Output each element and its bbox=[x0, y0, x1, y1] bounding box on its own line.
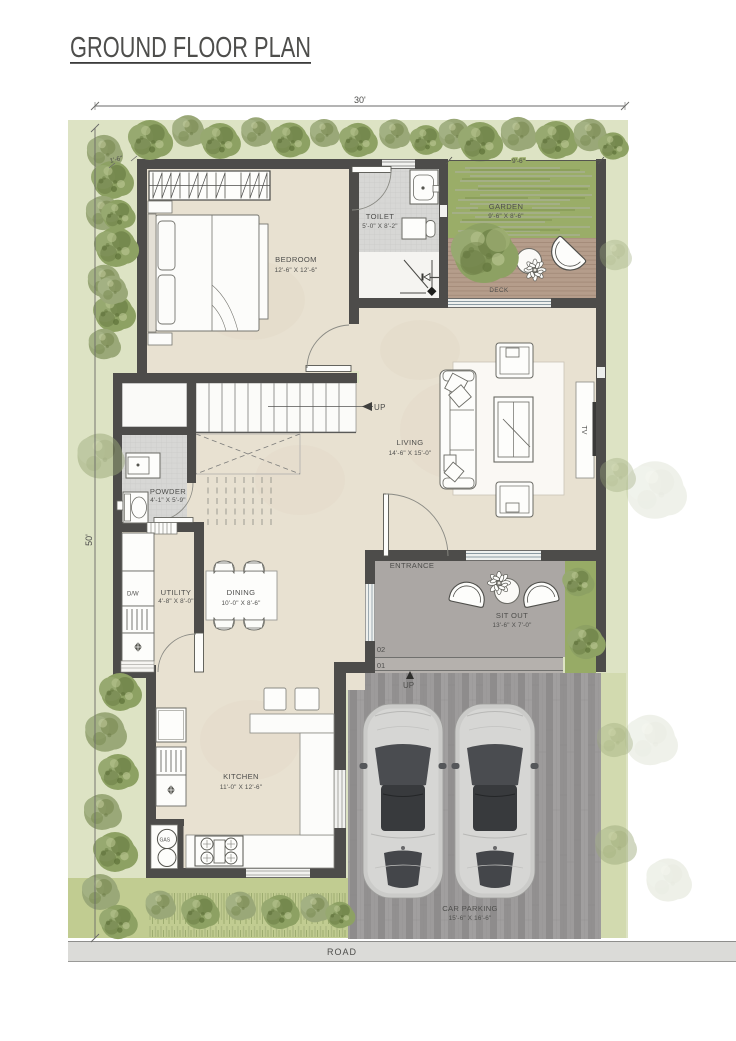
svg-text:50': 50' bbox=[84, 534, 94, 546]
svg-text:01: 01 bbox=[377, 661, 385, 670]
svg-text:UP: UP bbox=[374, 403, 386, 412]
svg-text:ENTRANCE: ENTRANCE bbox=[390, 561, 435, 570]
svg-text:SIT OUT: SIT OUT bbox=[496, 611, 528, 620]
svg-text:UP: UP bbox=[403, 681, 414, 690]
svg-text:TV: TV bbox=[580, 426, 587, 435]
svg-text:02: 02 bbox=[377, 645, 385, 654]
svg-text:13'-6" X 7'-0": 13'-6" X 7'-0" bbox=[492, 622, 531, 629]
svg-text:D/W: D/W bbox=[127, 592, 139, 598]
svg-text:5'-0" X 8'-2": 5'-0" X 8'-2" bbox=[362, 223, 397, 230]
svg-text:11'-0" X 12'-6": 11'-0" X 12'-6" bbox=[220, 784, 262, 791]
svg-text:KITCHEN: KITCHEN bbox=[223, 772, 259, 781]
svg-text:12'-6" X 12'-6": 12'-6" X 12'-6" bbox=[275, 267, 318, 274]
svg-text:9'-6" X 8'-6": 9'-6" X 8'-6" bbox=[488, 213, 523, 220]
svg-text:DINING: DINING bbox=[227, 588, 256, 597]
svg-text:GAS: GAS bbox=[160, 837, 171, 843]
svg-text:DECK: DECK bbox=[489, 287, 509, 294]
svg-text:LIVING: LIVING bbox=[397, 438, 424, 447]
svg-text:POWDER: POWDER bbox=[150, 487, 186, 496]
svg-text:30': 30' bbox=[354, 95, 366, 105]
svg-text:ROAD: ROAD bbox=[327, 947, 357, 957]
svg-text:10'-0" X 8'-6": 10'-0" X 8'-6" bbox=[221, 600, 260, 607]
svg-text:4'-8" X 8'-0": 4'-8" X 8'-0" bbox=[158, 598, 193, 605]
svg-text:BEDROOM: BEDROOM bbox=[275, 255, 317, 264]
svg-text:15'-6" X 16'-6": 15'-6" X 16'-6" bbox=[449, 915, 492, 922]
svg-text:CAR PARKING: CAR PARKING bbox=[442, 904, 498, 913]
svg-text:4'-1" X 5'-9": 4'-1" X 5'-9" bbox=[150, 497, 185, 504]
svg-text:TOILET: TOILET bbox=[366, 212, 395, 221]
svg-text:14'-6" X 15'-0": 14'-6" X 15'-0" bbox=[389, 450, 432, 457]
svg-text:UTILITY: UTILITY bbox=[161, 588, 192, 597]
svg-text:GARDEN: GARDEN bbox=[489, 202, 524, 211]
svg-text:GROUND FLOOR PLAN: GROUND FLOOR PLAN bbox=[70, 32, 311, 64]
svg-text:9'-6": 9'-6" bbox=[512, 158, 526, 165]
